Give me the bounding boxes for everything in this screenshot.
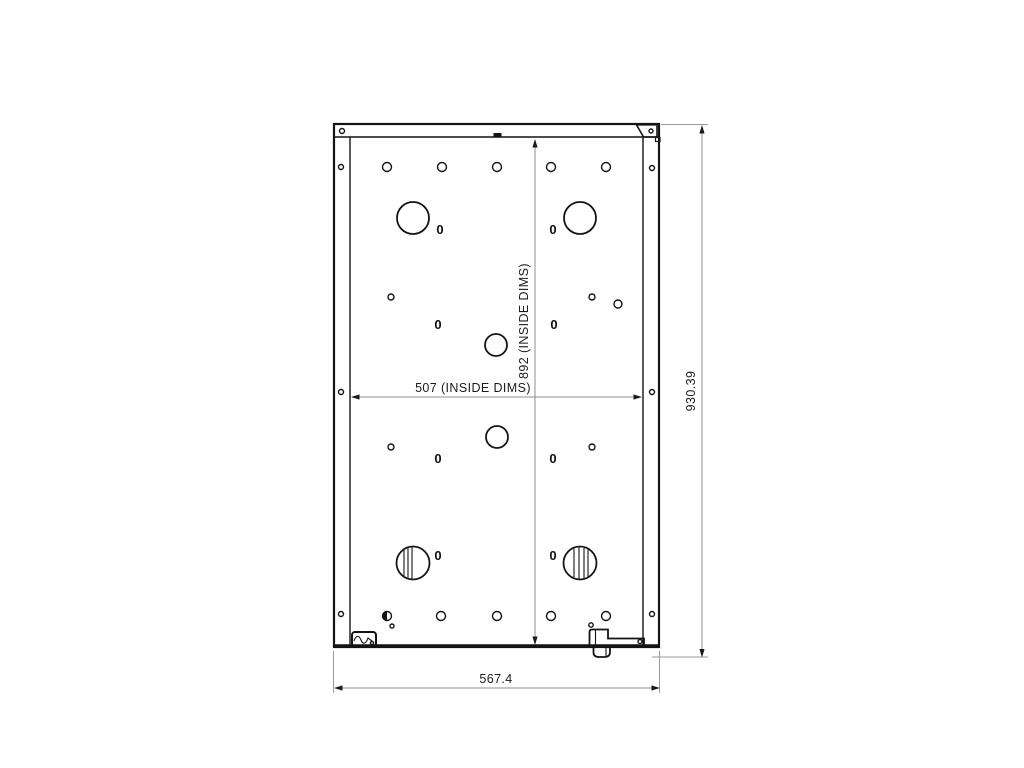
drawing-canvas: 892 (INSIDE DIMS) 507 (INSIDE DIMS) 930.… [0,0,1024,768]
arrow-right [634,394,643,399]
rail-hole [339,612,344,617]
dim-inside-depth-label: 892 (INSIDE DIMS) [517,263,531,379]
arrow-up [699,125,704,134]
top-row-hole [602,163,611,172]
dim-outer-width: 567.4 [334,651,661,693]
dim-outer-width-label: 567.4 [479,672,512,686]
tiny-hole [589,623,593,627]
bottom-row-hole [437,612,446,621]
bracket-spring-detail [354,636,372,643]
top-row-hole [493,163,502,172]
rail-hole [650,166,655,171]
center-hole [485,334,507,356]
arrow-down [699,649,704,658]
latch-plate [590,630,645,646]
zero-callout: 0 [436,222,443,237]
tiny-hole [638,640,642,644]
latch-bottom-right [590,630,645,658]
zero-callout: 0 [549,222,556,237]
pilot-hole [388,294,394,300]
arrow-right [652,685,661,690]
technical-drawing: 892 (INSIDE DIMS) 507 (INSIDE DIMS) 930.… [0,0,1024,768]
tiny-hole [390,624,394,628]
bracket-plate [637,125,658,137]
pilot-hole [589,444,595,450]
top-row-hole [547,163,556,172]
dim-inside-width: 507 (INSIDE DIMS) [351,381,642,400]
dim-overall-depth: 930.39 [652,125,708,658]
bottom-row-hole [602,612,611,621]
arrow-down [532,637,537,646]
arrow-left [334,685,343,690]
zero-callout: 0 [549,548,556,563]
latch-cam-circle [564,547,597,580]
arrow-left [351,394,360,399]
zero-callout: 0 [434,548,441,563]
top-row-hole [438,163,447,172]
pilot-hole [388,444,394,450]
latch-cam-outline [564,547,597,580]
bracket-hole [649,129,653,133]
rail-hole [340,129,345,134]
dim-overall-depth-label: 930.39 [684,371,698,412]
tiny-hole [370,641,373,644]
arrow-up [532,139,537,148]
latch-cam-circle [397,547,430,580]
latch-cam-outline [397,547,430,580]
large-hole [564,202,596,234]
bottom-row-hole [547,612,556,621]
rail-hole [339,390,344,395]
top-row-hole [383,163,392,172]
zero-callout: 0 [434,317,441,332]
zero-callout: 0 [434,451,441,466]
pilot-hole [589,294,595,300]
zero-callout: 0 [550,317,557,332]
rail-hole [650,390,655,395]
large-hole [397,202,429,234]
center-hole [486,426,508,448]
top-rail-center-tick [494,133,502,137]
bottom-row-hole [493,612,502,621]
rail-hole [339,165,344,170]
bracket-top-right [637,125,661,142]
zero-callout: 0 [549,451,556,466]
rail-hole [650,612,655,617]
pilot-hole [614,300,622,308]
dim-inside-width-label: 507 (INSIDE DIMS) [415,381,531,395]
